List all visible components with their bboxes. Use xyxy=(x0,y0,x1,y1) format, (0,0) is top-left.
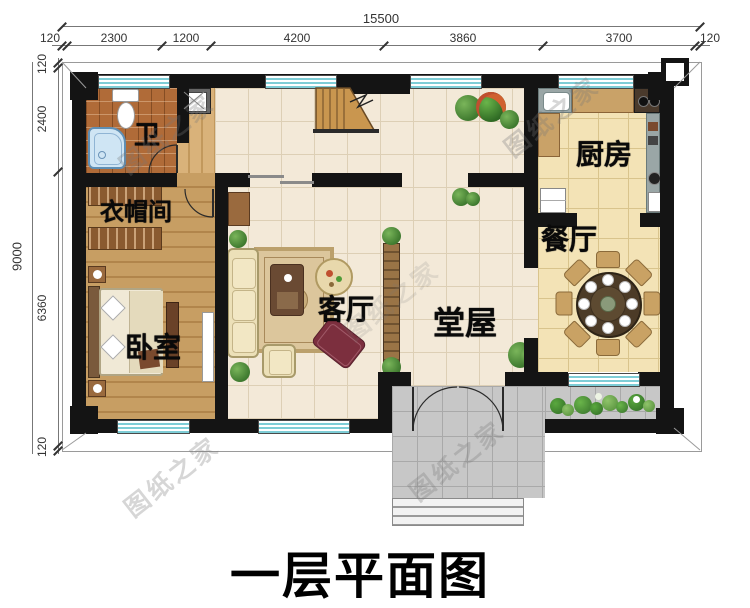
room-label-bedroom: 卧室 xyxy=(118,334,188,362)
room-label-hall: 堂屋 xyxy=(431,307,499,339)
page-title: 一层平面图 xyxy=(150,536,570,608)
room-label-dining: 餐厅 xyxy=(538,226,600,254)
room-label-kitchen: 厨房 xyxy=(568,141,640,169)
floor-plan: 卫 衣帽间 卧室 客厅 堂屋 厨房 餐厅 图纸之家 图纸之家 图纸之家 图纸之家… xyxy=(0,0,750,608)
door-arc-cloak xyxy=(185,189,213,217)
door-arc-entry-left xyxy=(413,387,457,431)
stairs xyxy=(316,88,374,130)
room-label-cloakroom: 衣帽间 xyxy=(90,201,182,225)
